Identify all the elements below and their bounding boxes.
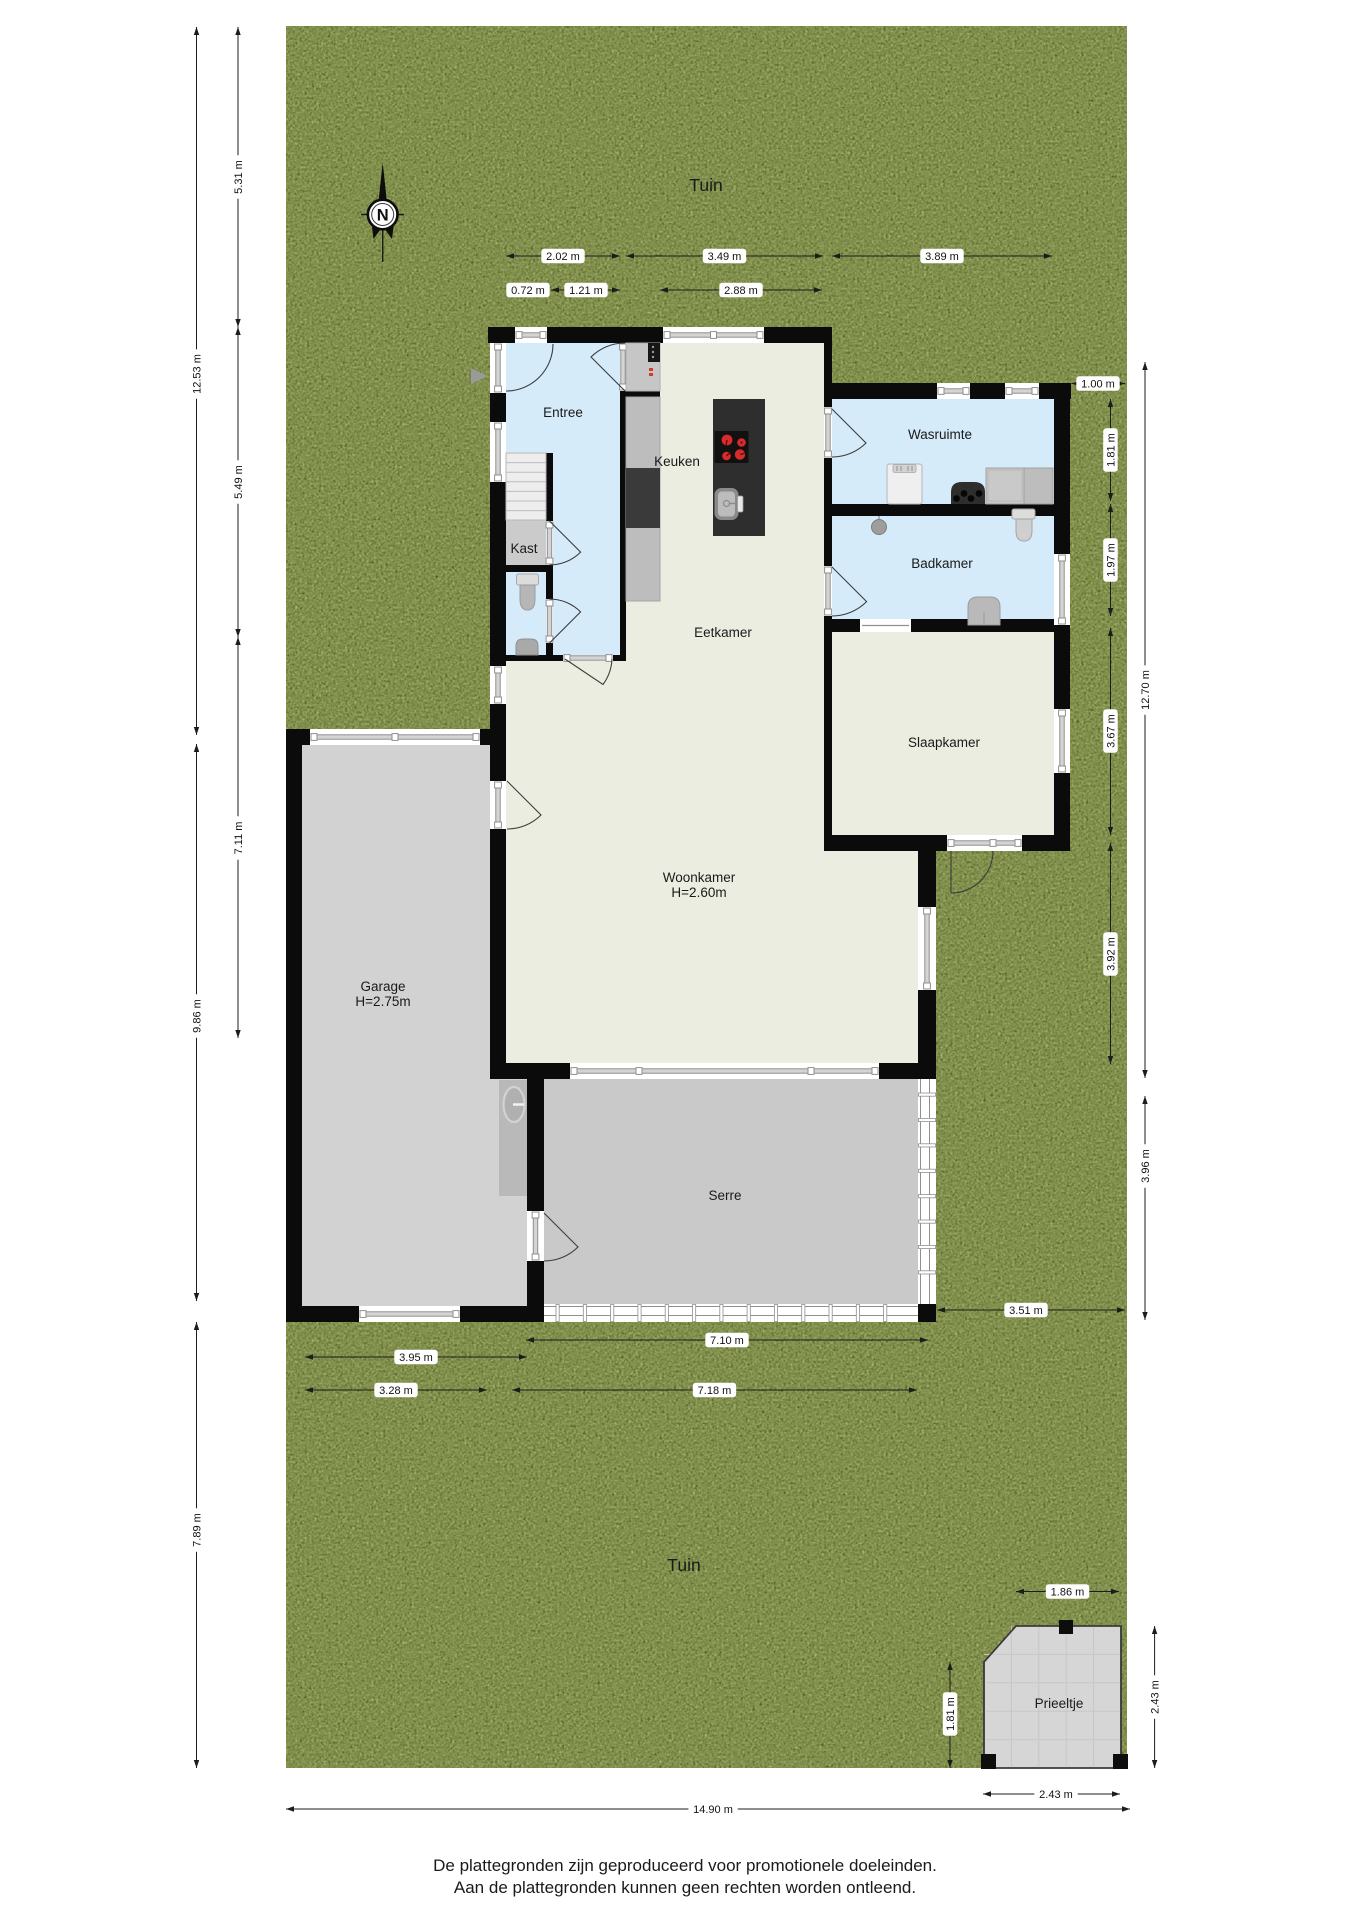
svg-text:Aan de plattegronden kunnen ge: Aan de plattegronden kunnen geen rechten… [454,1878,916,1897]
svg-text:3.51 m: 3.51 m [1009,1305,1043,1317]
svg-text:Slaapkamer: Slaapkamer [908,735,981,750]
svg-text:N: N [377,207,389,225]
svg-text:5.49 m: 5.49 m [233,465,245,499]
svg-text:3.95 m: 3.95 m [399,1352,433,1364]
svg-text:2.02 m: 2.02 m [546,251,580,263]
svg-text:1.21 m: 1.21 m [569,285,603,297]
svg-text:Badkamer: Badkamer [911,556,973,571]
svg-text:12.53 m: 12.53 m [191,354,203,394]
svg-text:3.96 m: 3.96 m [1140,1149,1152,1183]
svg-text:3.28 m: 3.28 m [379,1385,413,1397]
svg-text:7.11 m: 7.11 m [233,822,245,855]
svg-text:2.43 m: 2.43 m [1150,1680,1162,1714]
svg-text:H=2.60m: H=2.60m [671,885,726,900]
svg-text:Eetkamer: Eetkamer [694,625,752,640]
svg-text:14.90 m: 14.90 m [693,1804,733,1816]
svg-text:3.92 m: 3.92 m [1105,937,1117,971]
svg-text:Prieeltje: Prieeltje [1035,1696,1084,1711]
svg-text:Kast: Kast [510,541,537,556]
svg-text:1.86 m: 1.86 m [1051,1586,1085,1598]
svg-text:7.10 m: 7.10 m [710,1335,744,1347]
svg-text:Woonkamer: Woonkamer [663,870,736,885]
svg-text:9.86 m: 9.86 m [191,999,203,1033]
svg-text:1.81 m: 1.81 m [945,1697,957,1731]
svg-text:Serre: Serre [708,1188,741,1203]
svg-text:7.18 m: 7.18 m [698,1385,732,1397]
svg-text:H=2.75m: H=2.75m [355,994,410,1009]
svg-text:5.31 m: 5.31 m [233,160,245,194]
svg-text:3.49 m: 3.49 m [708,251,742,263]
svg-text:1.81 m: 1.81 m [1105,433,1117,467]
svg-text:Tuin: Tuin [689,175,722,195]
svg-text:3.89 m: 3.89 m [925,251,959,263]
svg-text:2.43 m: 2.43 m [1039,1789,1073,1801]
svg-text:1.97 m: 1.97 m [1105,543,1117,577]
svg-text:1.00 m: 1.00 m [1081,378,1115,390]
svg-text:Entree: Entree [543,405,583,420]
svg-text:0.72 m: 0.72 m [511,285,545,297]
svg-text:Garage: Garage [360,979,405,994]
svg-text:3.67 m: 3.67 m [1105,714,1117,748]
svg-text:Tuin: Tuin [667,1555,700,1575]
svg-text:12.70 m: 12.70 m [1140,670,1152,710]
svg-text:Keuken: Keuken [654,454,700,469]
svg-text:7.89 m: 7.89 m [191,1513,203,1547]
svg-text:De plattegronden zijn geproduc: De plattegronden zijn geproduceerd voor … [433,1856,937,1875]
svg-text:Wasruimte: Wasruimte [908,427,972,442]
svg-text:2.88 m: 2.88 m [724,285,758,297]
